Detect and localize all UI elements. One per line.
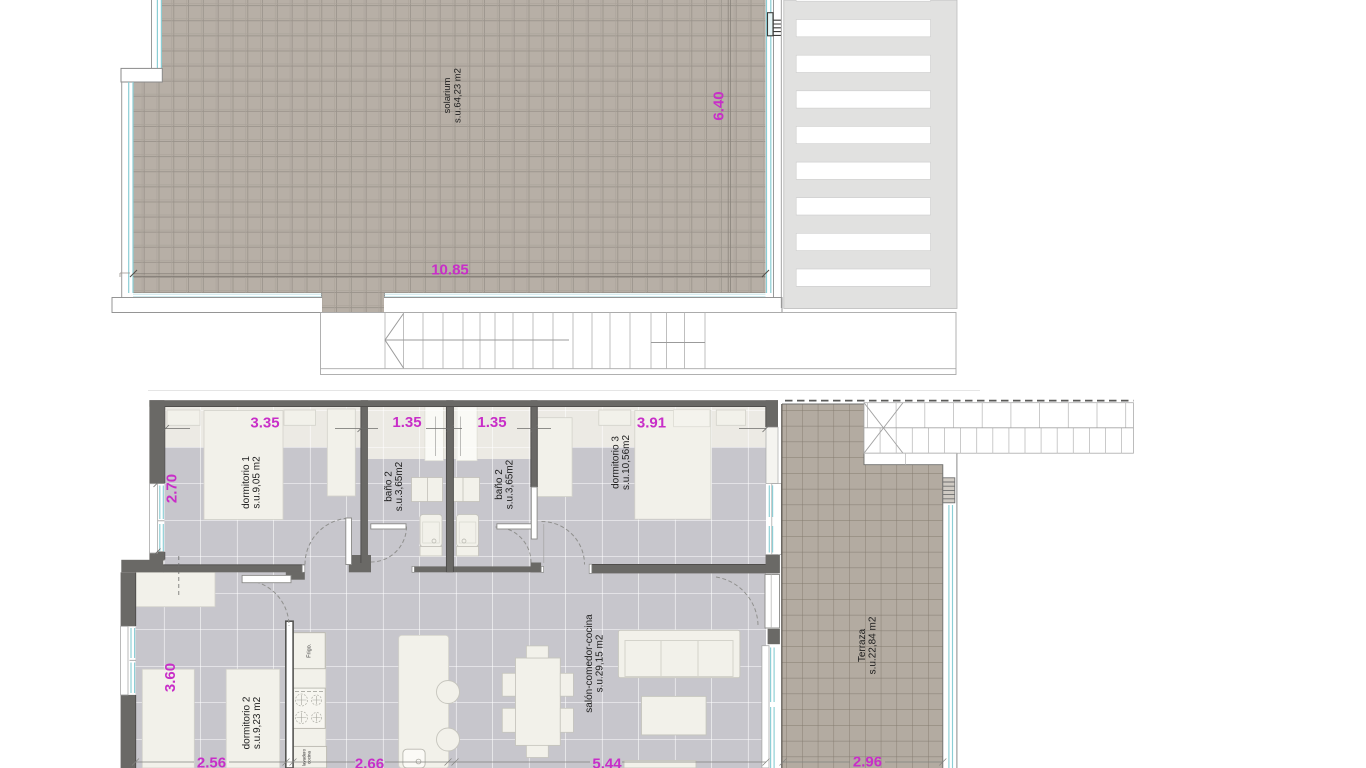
svg-text:1.35: 1.35 — [392, 414, 421, 431]
svg-text:cocina: cocina — [307, 751, 312, 765]
svg-text:5.44: 5.44 — [592, 756, 622, 768]
svg-text:s.u.9,23 m2: s.u.9,23 m2 — [252, 696, 263, 749]
svg-text:6.40: 6.40 — [711, 91, 728, 120]
svg-text:2.96: 2.96 — [853, 754, 882, 768]
svg-text:1.35: 1.35 — [477, 414, 506, 431]
svg-text:salón-comedor-cocina: salón-comedor-cocina — [584, 614, 595, 713]
svg-text:2.70: 2.70 — [164, 474, 181, 503]
svg-text:3.91: 3.91 — [637, 415, 666, 432]
svg-text:dormitorio 1: dormitorio 1 — [241, 456, 252, 509]
svg-text:baño 2: baño 2 — [384, 471, 395, 502]
svg-text:2.66: 2.66 — [355, 756, 384, 768]
svg-text:dormitorio 3: dormitorio 3 — [611, 436, 622, 489]
svg-text:s.u.10,56m2: s.u.10,56m2 — [621, 435, 632, 490]
svg-text:s.u.22,84 m2: s.u.22,84 m2 — [868, 616, 879, 674]
svg-text:Frigo.: Frigo. — [307, 643, 313, 658]
svg-text:10.85: 10.85 — [431, 262, 469, 279]
svg-text:3.60: 3.60 — [162, 663, 179, 692]
svg-text:s.u.29,15 m2: s.u.29,15 m2 — [595, 634, 606, 692]
svg-text:solarium: solarium — [442, 77, 453, 113]
svg-text:Terraza: Terraza — [857, 628, 868, 662]
svg-text:3.35: 3.35 — [250, 415, 279, 432]
svg-text:s.u.64,23 m2: s.u.64,23 m2 — [453, 68, 464, 123]
svg-text:s.u.3,65m2: s.u.3,65m2 — [505, 459, 516, 509]
svg-text:s.u.9,05 m2: s.u.9,05 m2 — [252, 456, 263, 509]
svg-text:s.u.3,65m2: s.u.3,65m2 — [394, 461, 405, 511]
svg-text:baño 2: baño 2 — [494, 469, 505, 500]
svg-text:2.56: 2.56 — [197, 755, 226, 768]
svg-text:dormitorio 2: dormitorio 2 — [242, 696, 253, 749]
